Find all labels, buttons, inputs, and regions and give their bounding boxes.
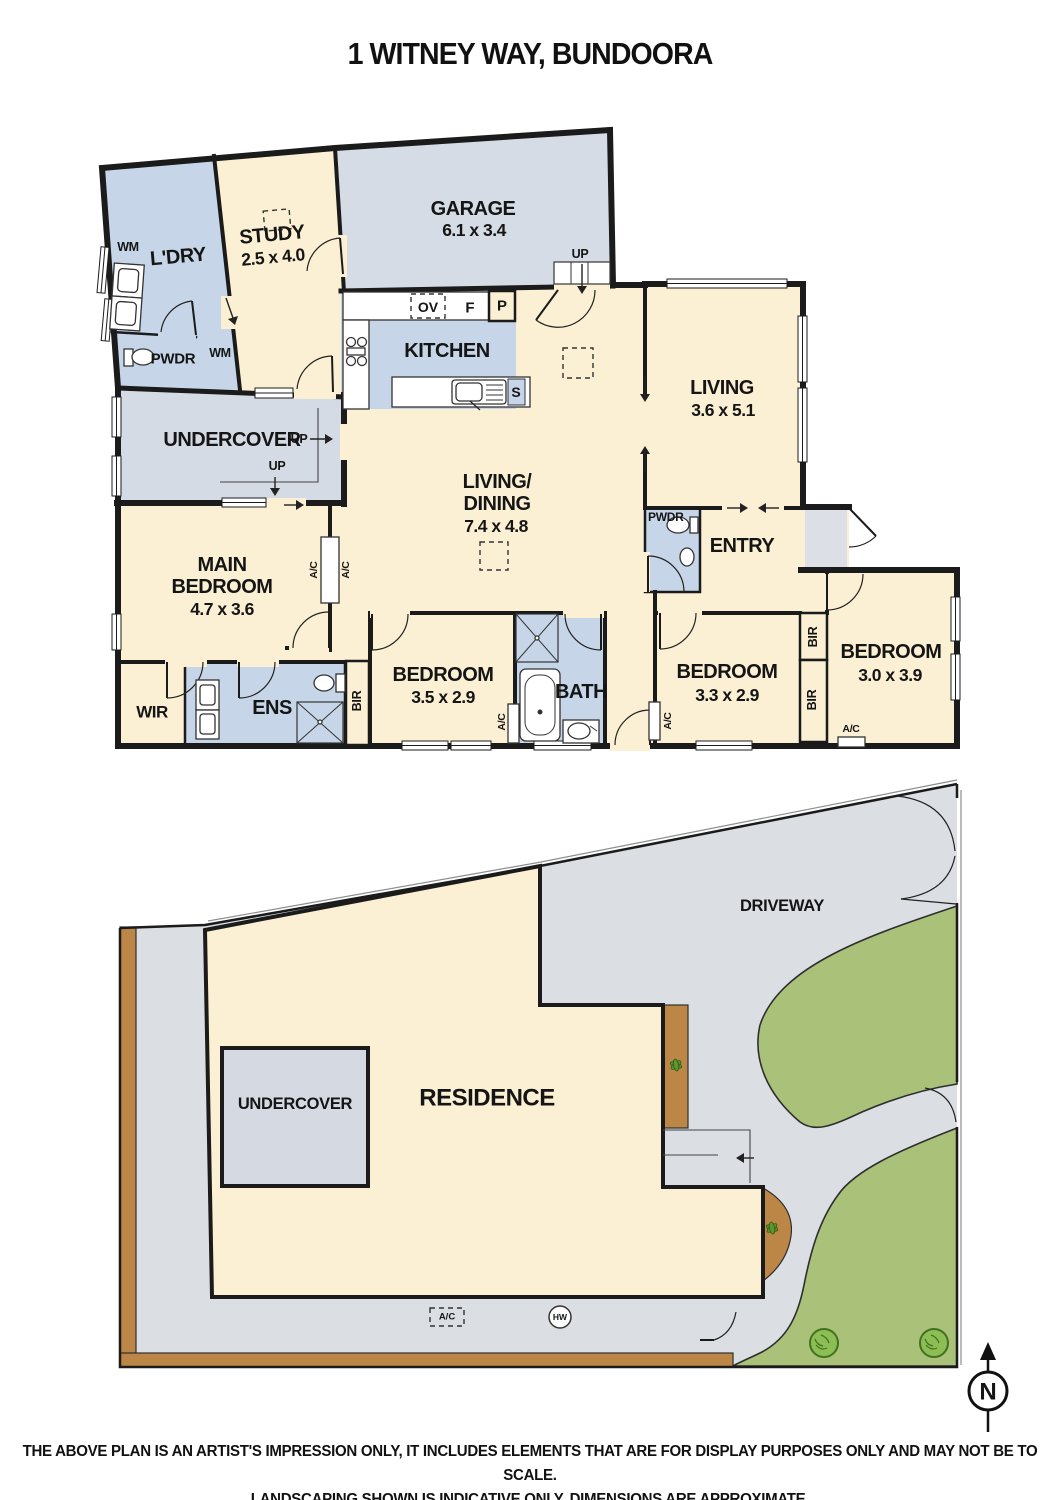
wm-label-2: WM: [209, 346, 231, 360]
ens-shower-icon: [297, 702, 343, 743]
bed2-label: BEDROOM: [393, 664, 494, 686]
bed3-dims: 3.3 x 2.9: [695, 685, 759, 705]
ac-label-mainbed-l: A/C: [308, 561, 320, 579]
ens-toilet-icon: [314, 674, 345, 692]
livingdining-dims: 7.4 x 4.8: [464, 516, 528, 536]
bush-icon-2: [920, 1329, 948, 1357]
livingdining-label1: LIVING/: [463, 471, 533, 493]
ac-unit-bed4: [838, 737, 865, 747]
toilet-icon-pwdr1: [124, 349, 154, 366]
floorplan-page: 1 WITNEY WAY, BUNDOORA: [0, 0, 1060, 1500]
plan-canvas: GARAGE 6.1 x 3.4 STUDY 2.5 x 4.0 L'DRY W…: [0, 0, 1060, 1500]
floor-plan: GARAGE 6.1 x 3.4 STUDY 2.5 x 4.0 L'DRY W…: [97, 130, 960, 751]
ac-label-mainbed-r: A/C: [340, 561, 352, 579]
residence-label: RESIDENCE: [419, 1085, 555, 1112]
ac-unit-mainbed: [321, 537, 339, 603]
site-ac-label: A/C: [439, 1312, 456, 1323]
up-label-2: UP: [269, 459, 286, 473]
washing-machines-icon: [110, 263, 145, 331]
bir-label-2: BIR: [805, 689, 819, 710]
bir-label-bed2: BIR: [350, 690, 364, 711]
living-label: LIVING: [690, 377, 754, 399]
disclaimer: THE ABOVE PLAN IS AN ARTIST'S IMPRESSION…: [16, 1440, 1044, 1500]
bath-shower-icon: [516, 614, 558, 662]
ens-basins-icon: [196, 680, 219, 739]
north-compass-icon: N: [969, 1342, 1007, 1432]
up-label-1: UP: [291, 432, 308, 446]
bir-label-1: BIR: [806, 626, 820, 647]
site-undercover: [222, 1048, 368, 1186]
mainbed-label2: BEDROOM: [172, 576, 273, 598]
disclaimer-line1: THE ABOVE PLAN IS AN ARTIST'S IMPRESSION…: [16, 1440, 1044, 1488]
entry-porch: [805, 505, 847, 568]
driveway-label: DRIVEWAY: [740, 897, 824, 915]
site-undercover-label: UNDERCOVER: [238, 1095, 353, 1113]
bath-vanity-icon: [563, 720, 599, 743]
ac-label-bed4: A/C: [842, 723, 860, 735]
bed3-label: BEDROOM: [677, 661, 778, 683]
pantry-label: P: [497, 298, 507, 315]
ac-unit-bed3: [649, 702, 660, 740]
kitchen-label: KITCHEN: [404, 340, 489, 362]
livingdining-label2: DINING: [464, 493, 531, 515]
garden-strip-bottom: [120, 1353, 733, 1367]
bath-label: BATH: [555, 681, 607, 703]
living-dims: 3.6 x 5.1: [691, 400, 755, 420]
ac-label-bed2: A/C: [496, 713, 508, 731]
hw-label: HW: [553, 1312, 568, 1322]
fridge-label: F: [465, 300, 474, 317]
sink-label: S: [511, 384, 520, 400]
oven-label: OV: [418, 299, 439, 315]
garage-dims: 6.1 x 3.4: [442, 220, 506, 240]
wm-label-1: WM: [117, 240, 139, 254]
bush-icon-1: [810, 1329, 838, 1357]
site-plan: A/C HW DRIVEWAY RESIDENCE UNDERCOVER N: [120, 780, 1007, 1432]
bathtub-icon: [520, 669, 560, 741]
ens-label: ENS: [252, 697, 292, 719]
powder1-label: PWDR: [151, 351, 196, 368]
up-label-garage: UP: [572, 247, 589, 261]
wir-label: WIR: [136, 703, 168, 722]
bed4-label: BEDROOM: [841, 641, 942, 663]
mainbed-label1: MAIN: [197, 554, 246, 576]
garden-strip-left: [120, 927, 136, 1367]
ac-unit-bed2: [508, 704, 519, 743]
compass-n-label: N: [979, 1379, 996, 1406]
powder2-label: PWDR: [648, 510, 684, 524]
ac-label-bed3: A/C: [662, 712, 674, 730]
garage-label: GARAGE: [431, 198, 516, 220]
bed2-dims: 3.5 x 2.9: [411, 687, 475, 707]
mainbed-dims: 4.7 x 3.6: [190, 599, 254, 619]
bed4-dims: 3.0 x 3.9: [858, 665, 922, 685]
entry-label: ENTRY: [710, 535, 776, 557]
undercover-label: UNDERCOVER: [163, 429, 301, 451]
disclaimer-line2: LANDSCAPING SHOWN IS INDICATIVE ONLY. DI…: [16, 1488, 1044, 1500]
